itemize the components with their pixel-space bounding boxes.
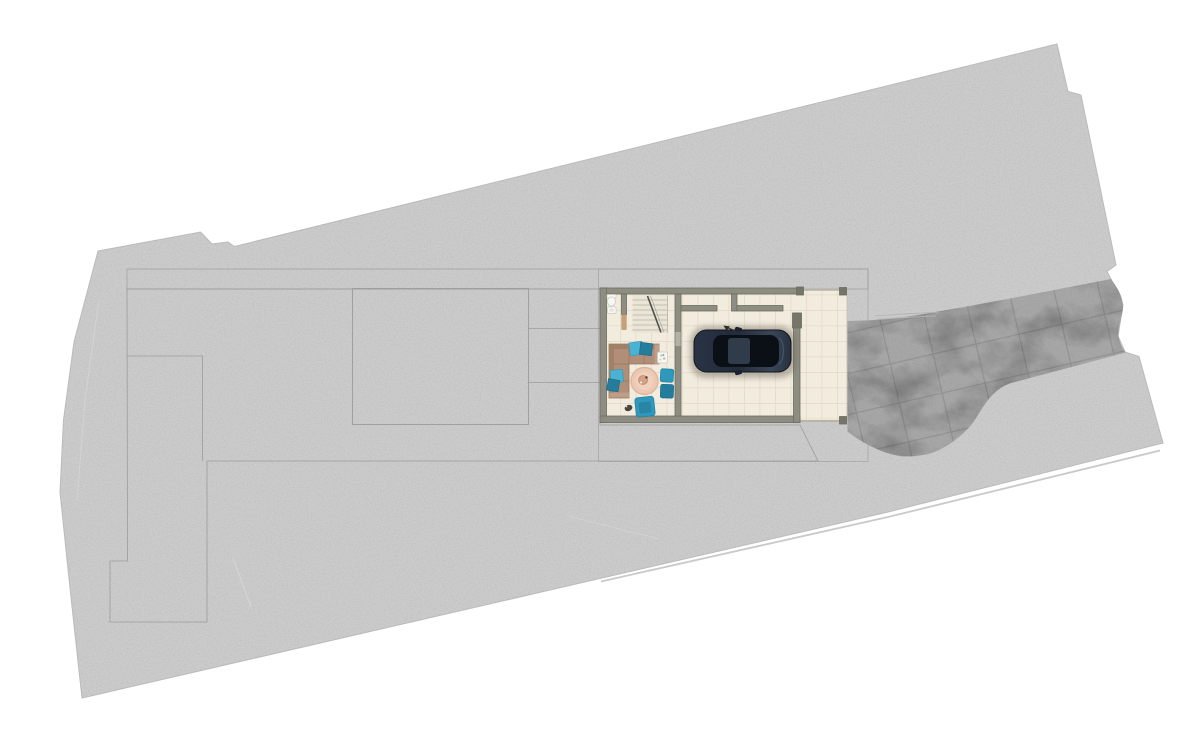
- toilet: [608, 297, 616, 306]
- garage-door-jamb: [793, 313, 802, 328]
- site-plan-canvas: Site parcel (concrete ground) Road edge …: [0, 0, 1200, 742]
- car: Dark sedan parked in garage: [694, 326, 791, 376]
- bathroom-door: [622, 315, 626, 330]
- armchair: Teal armchair: [635, 396, 656, 417]
- site-plan-svg: Site parcel (concrete ground) Road edge …: [0, 0, 1200, 742]
- bathroom-wall: [622, 294, 627, 315]
- garage-apron: Tiled apron in front of garage: [798, 288, 847, 425]
- living-garage-wall: [675, 294, 681, 416]
- apron-post-top: [840, 288, 847, 296]
- staircase: Staircase: [633, 296, 668, 334]
- pillow-4: [607, 379, 620, 392]
- apron-post-bottom: [840, 417, 847, 425]
- house-ground-floor: House ground floor Tiled apron in front …: [600, 287, 847, 424]
- garage: Garage Dark sedan parked in garage: [690, 326, 796, 379]
- corner-column: [797, 287, 804, 295]
- rug-and-coffee-table: Round rug with coffee table: [631, 368, 658, 395]
- car-roof: [728, 338, 750, 364]
- garage-closet-wall-b: [737, 306, 783, 312]
- pillow-2: [639, 342, 652, 355]
- interior-door: [675, 332, 680, 346]
- garage-closet-stub: [732, 294, 738, 311]
- garage-closet-wall-a: [681, 306, 717, 312]
- side-table: Side table with plant: [658, 352, 668, 363]
